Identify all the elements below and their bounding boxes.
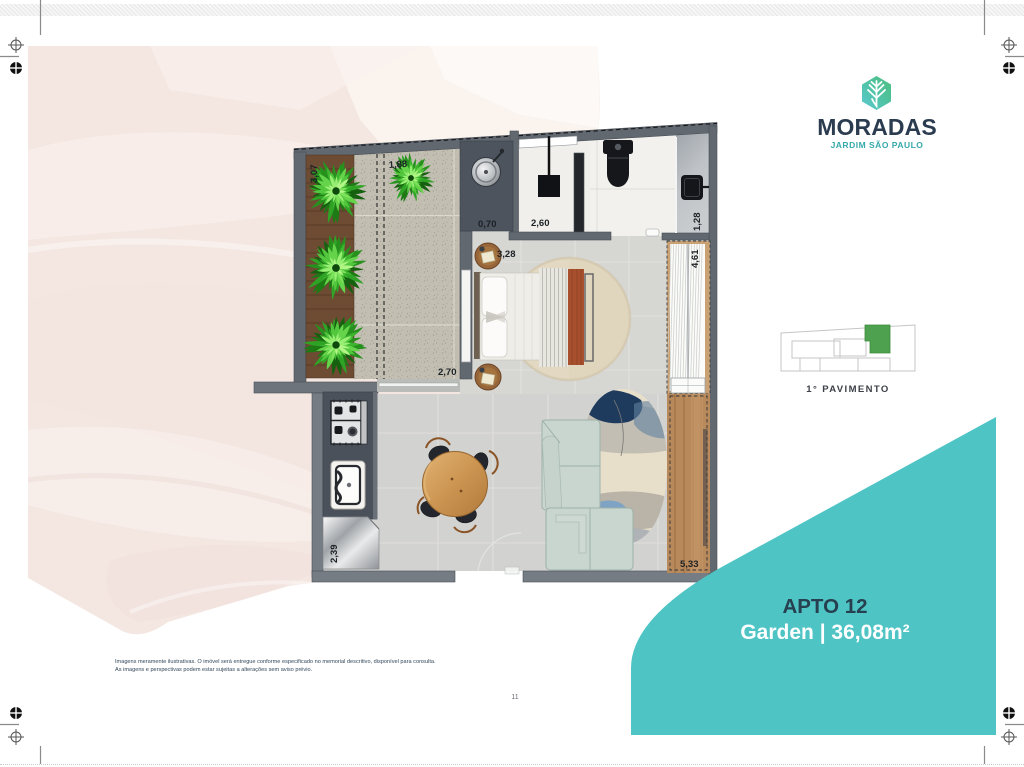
svg-text:4,61: 4,61	[690, 249, 701, 268]
svg-text:2,39: 2,39	[329, 545, 340, 564]
svg-text:JARDIM SÃO PAULO: JARDIM SÃO PAULO	[831, 140, 924, 150]
svg-text:0,70: 0,70	[478, 219, 497, 230]
svg-text:1,88: 1,88	[388, 159, 407, 171]
svg-text:3,28: 3,28	[497, 249, 516, 260]
svg-text:1° PAVIMENTO: 1° PAVIMENTO	[806, 384, 889, 395]
svg-text:5,33: 5,33	[680, 559, 699, 570]
svg-text:2,70: 2,70	[438, 367, 457, 378]
svg-text:2,60: 2,60	[531, 218, 550, 229]
svg-text:MORADAS: MORADAS	[817, 114, 937, 140]
svg-text:3,07: 3,07	[309, 165, 320, 184]
svg-text:1,28: 1,28	[692, 213, 703, 232]
svg-text:Garden | 36,08m²: Garden | 36,08m²	[740, 621, 909, 644]
svg-text:APTO 12: APTO 12	[782, 595, 867, 618]
